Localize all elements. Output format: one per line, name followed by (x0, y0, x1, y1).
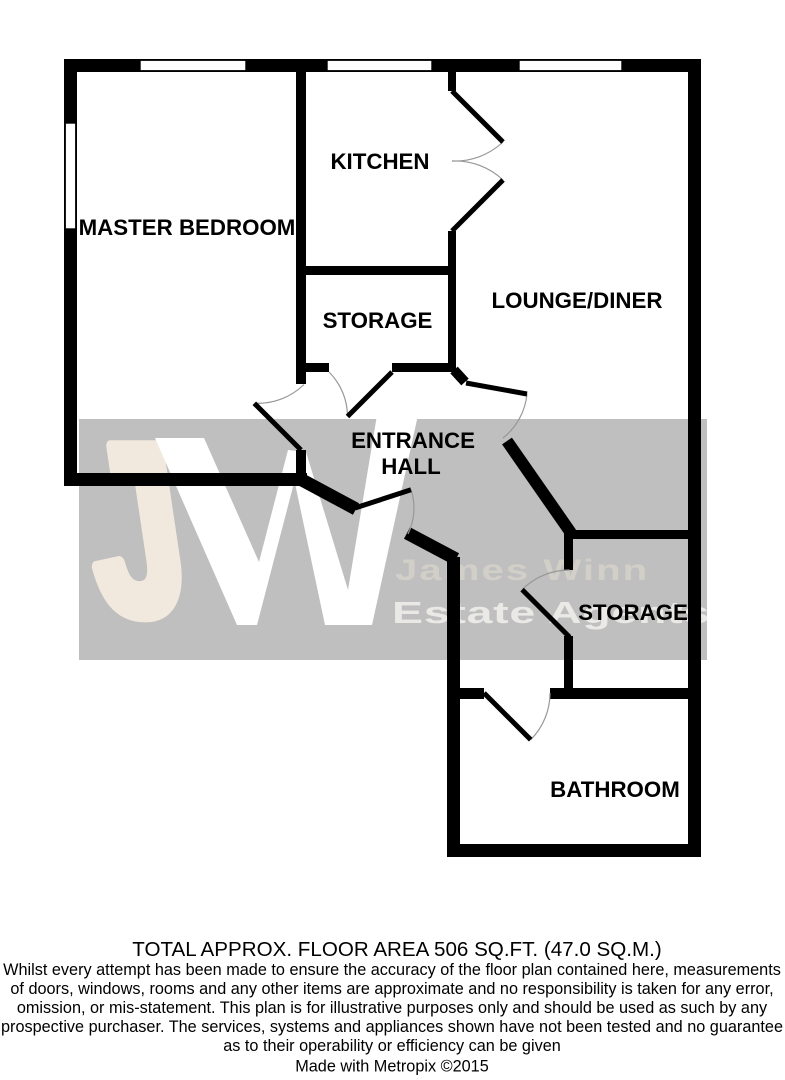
svg-text:of doors, windows, rooms and a: of doors, windows, rooms and any other i… (10, 980, 773, 998)
svg-text:omission, or mis-statement. Th: omission, or mis-statement. This plan is… (17, 999, 768, 1017)
svg-text:MASTER BEDROOM: MASTER BEDROOM (79, 215, 296, 240)
svg-text:TOTAL APPROX. FLOOR AREA 506 S: TOTAL APPROX. FLOOR AREA 506 SQ.FT. (47.… (132, 938, 662, 961)
svg-text:ENTRANCE: ENTRANCE (351, 428, 475, 453)
svg-text:STORAGE: STORAGE (323, 308, 433, 333)
svg-text:as to their operability or eff: as to their operability or efficiency ca… (223, 1037, 561, 1055)
svg-text:KITCHEN: KITCHEN (330, 149, 429, 174)
svg-text:HALL: HALL (381, 454, 440, 479)
svg-text:STORAGE: STORAGE (578, 600, 688, 625)
svg-text:BATHROOM: BATHROOM (550, 777, 680, 802)
svg-text:prospective purchaser. The ser: prospective purchaser. The services, sys… (1, 1018, 783, 1036)
svg-text:LOUNGE/DINER: LOUNGE/DINER (492, 288, 663, 313)
svg-text:Whilst every attempt has been: Whilst every attempt has been made to en… (3, 961, 781, 979)
svg-text:James Winn: James Winn (395, 553, 649, 587)
svg-text:Made with Metropix ©2015: Made with Metropix ©2015 (295, 1058, 489, 1076)
